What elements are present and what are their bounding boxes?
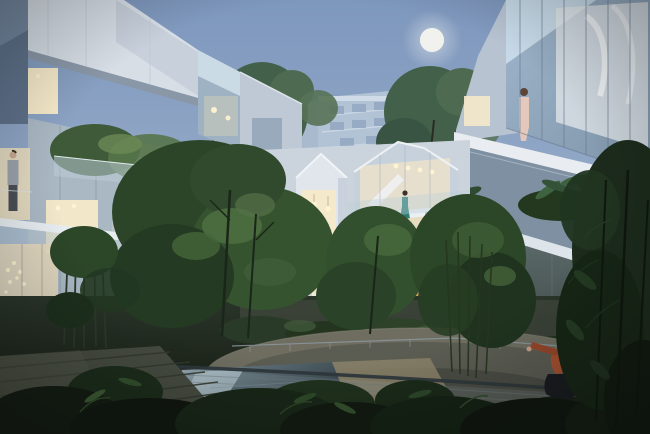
vignette-overlay xyxy=(0,0,650,434)
architectural-rendering xyxy=(0,0,650,434)
scene-canvas xyxy=(0,0,650,434)
